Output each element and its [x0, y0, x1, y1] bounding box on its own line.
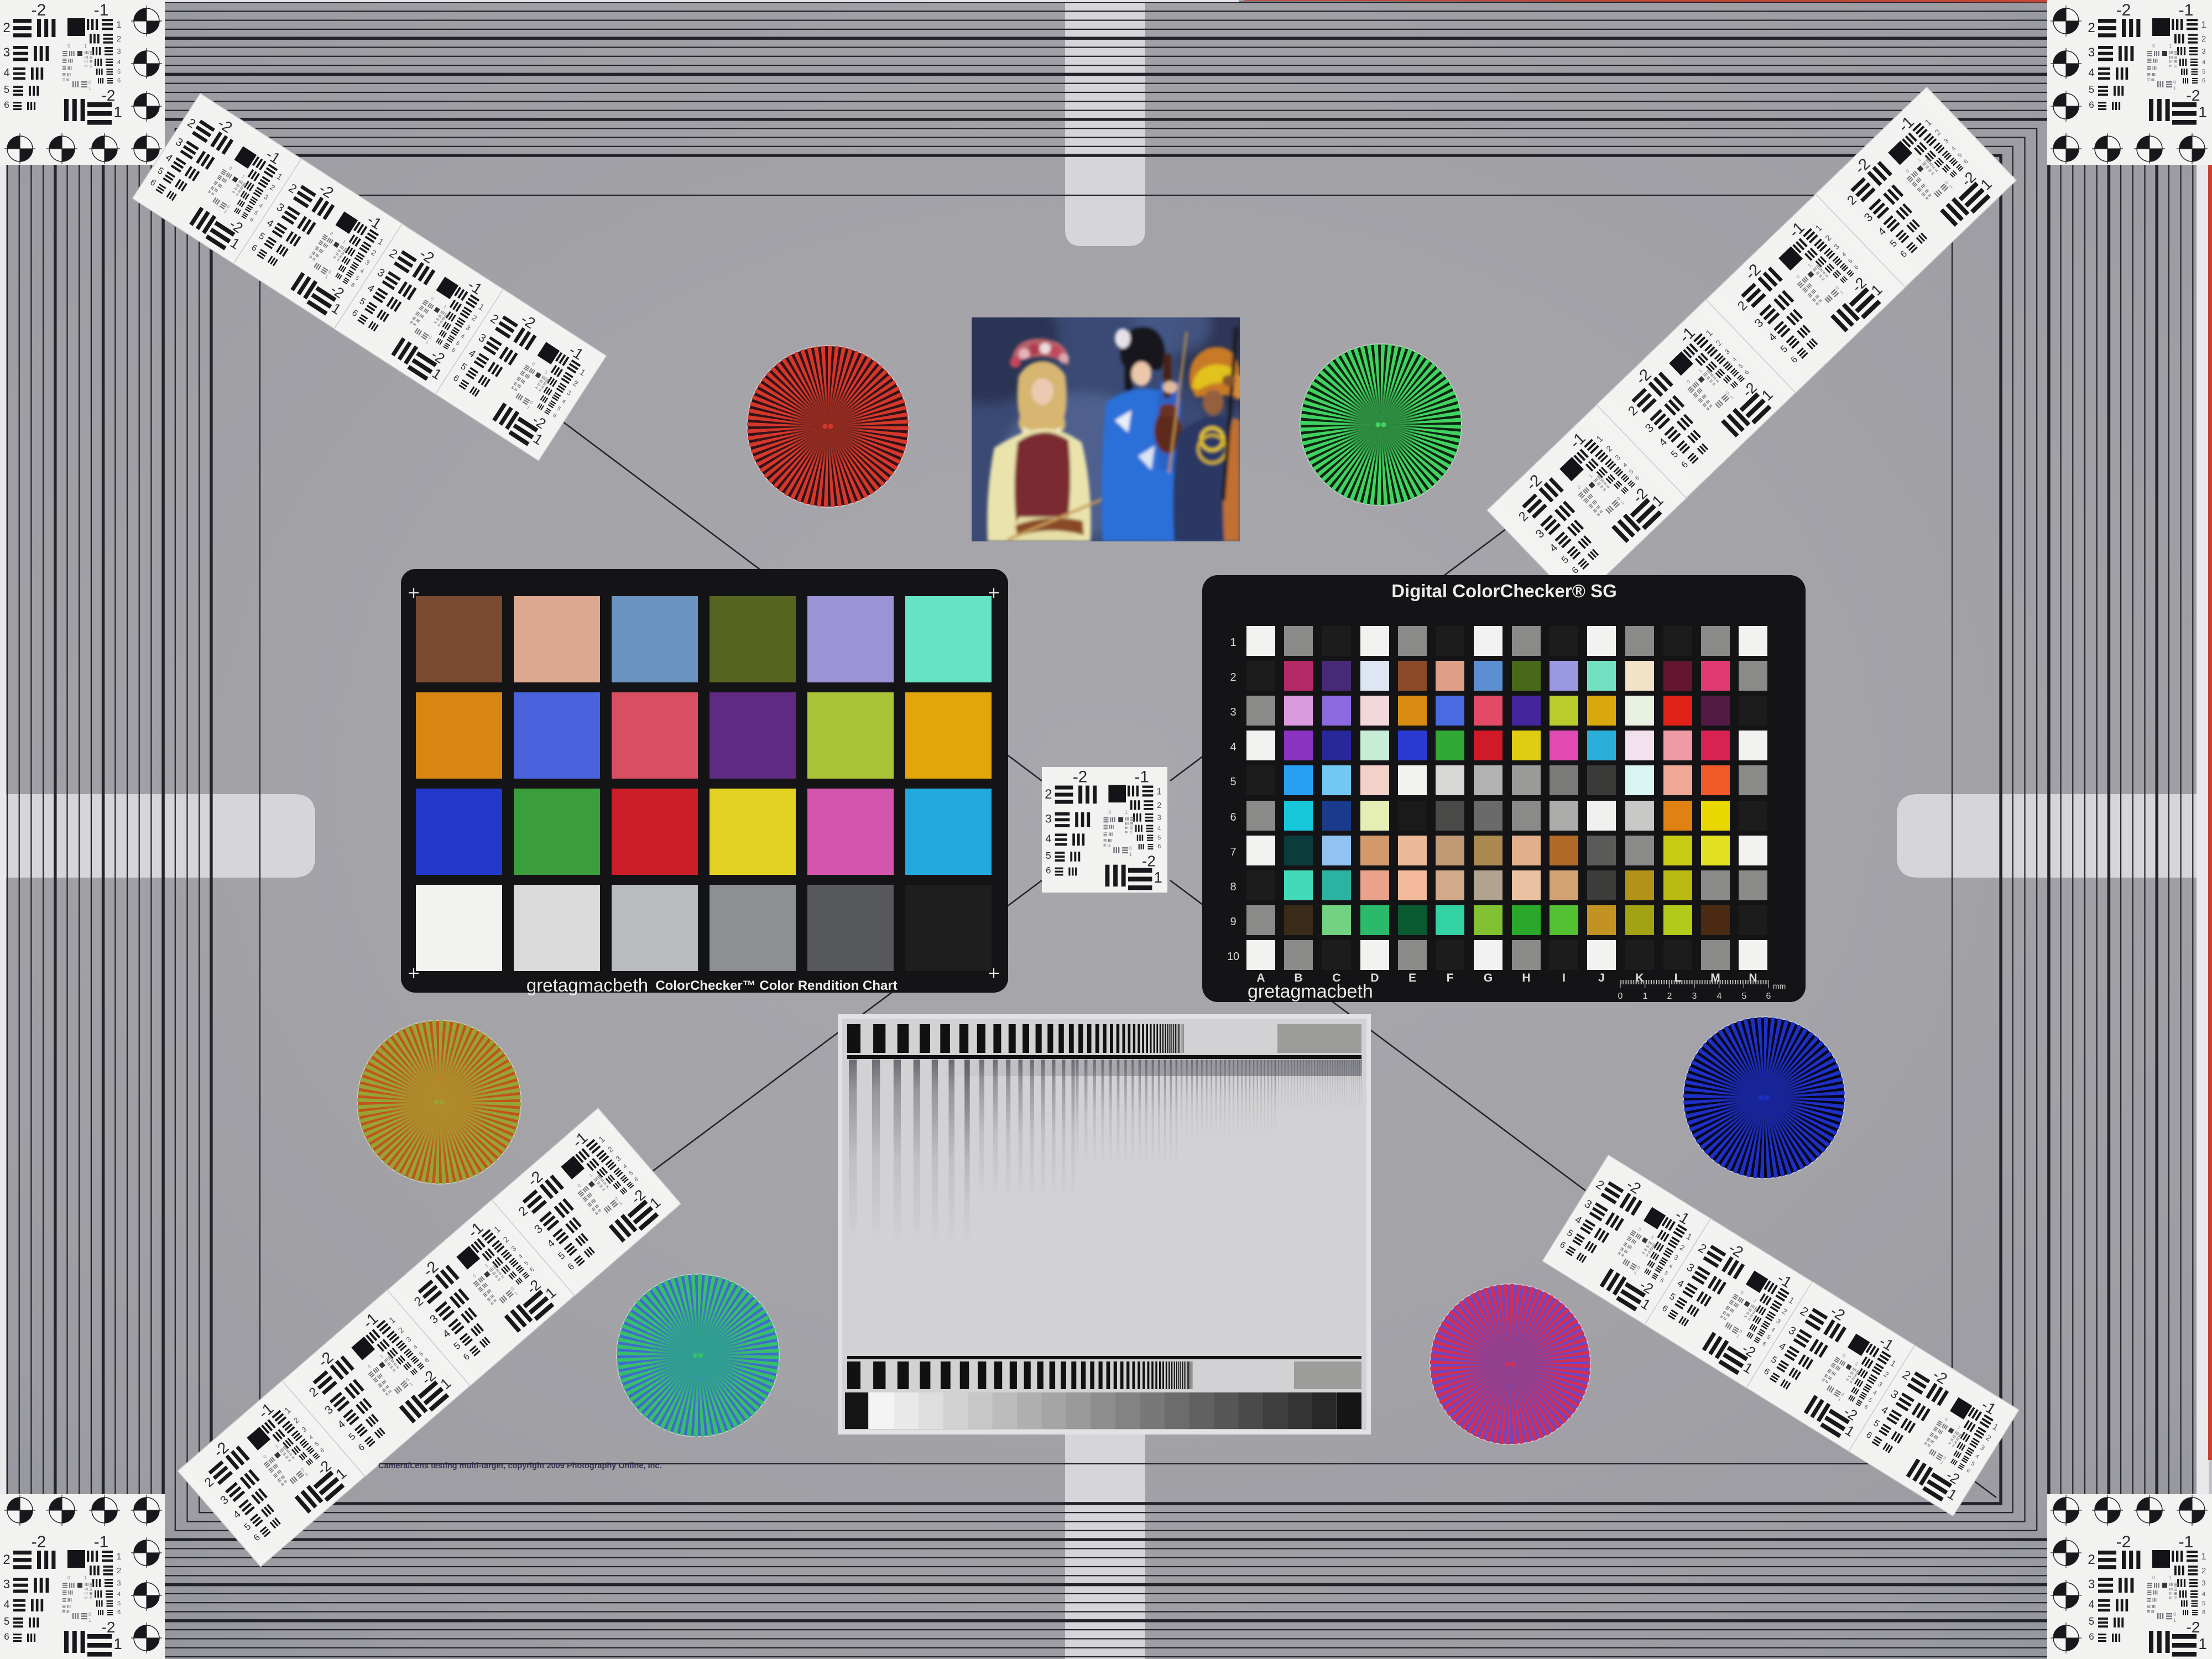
svg-text:H: H: [1522, 972, 1530, 984]
svg-text:8: 8: [1230, 881, 1236, 893]
svg-text:N: N: [1749, 972, 1757, 984]
svg-text:2: 2: [1667, 992, 1672, 1001]
svg-text:5: 5: [1742, 992, 1747, 1001]
svg-text:0: 0: [1618, 992, 1623, 1001]
svg-text:7: 7: [1230, 846, 1236, 858]
svg-text:1: 1: [1230, 637, 1236, 649]
svg-text:9: 9: [1230, 916, 1236, 928]
svg-text:M: M: [1710, 972, 1720, 984]
svg-text:Digital ColorChecker® SG: Digital ColorChecker® SG: [1391, 581, 1617, 601]
svg-text:3: 3: [1230, 706, 1236, 718]
svg-text:10: 10: [1227, 951, 1239, 963]
svg-text:G: G: [1484, 972, 1493, 984]
svg-text:1: 1: [1643, 992, 1648, 1001]
svg-text:E: E: [1408, 972, 1416, 984]
svg-text:6: 6: [1230, 811, 1236, 823]
svg-text:6: 6: [1766, 992, 1771, 1001]
svg-text:5: 5: [1230, 776, 1236, 788]
svg-text:gretagmacbeth: gretagmacbeth: [1248, 981, 1373, 1002]
svg-text:4: 4: [1717, 992, 1722, 1001]
svg-text:J: J: [1598, 972, 1605, 984]
svg-text:F: F: [1447, 972, 1454, 984]
svg-text:4: 4: [1230, 741, 1236, 753]
svg-text:3: 3: [1692, 992, 1697, 1001]
svg-text:gretagmacbeth: gretagmacbeth: [526, 975, 648, 995]
svg-text:I: I: [1562, 972, 1566, 984]
svg-text:mm: mm: [1773, 982, 1786, 990]
svg-text:ColorChecker™ Color Rendition: ColorChecker™ Color Rendition Chart: [655, 978, 897, 993]
svg-text:Camera/Lens testing multi-targ: Camera/Lens testing multi-target, copyri…: [378, 1462, 661, 1470]
svg-text:2: 2: [1230, 671, 1236, 684]
